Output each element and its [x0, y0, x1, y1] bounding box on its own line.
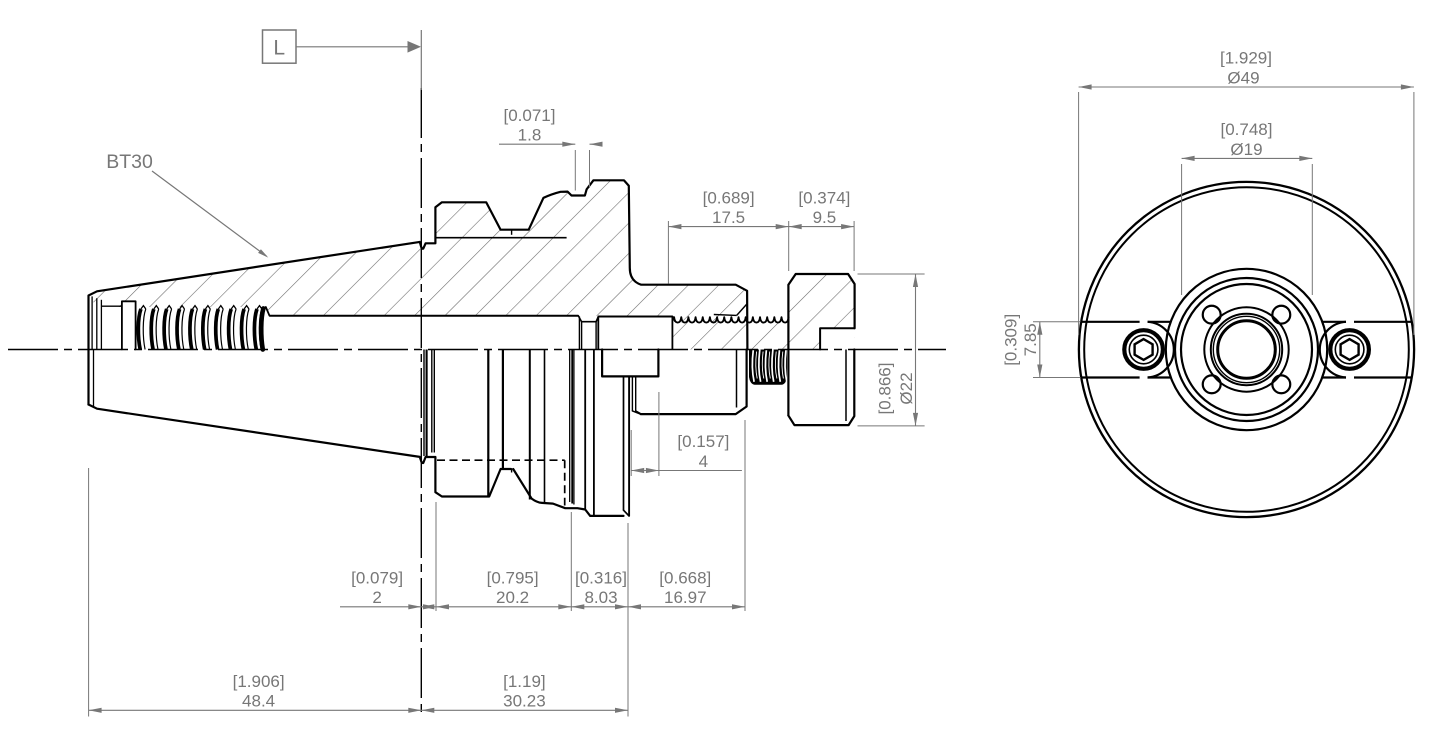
svg-text:[0.668]: [0.668]	[659, 569, 711, 588]
svg-text:Ø22: Ø22	[897, 372, 916, 404]
svg-text:L: L	[273, 37, 285, 60]
svg-text:[0.157]: [0.157]	[677, 432, 729, 451]
svg-text:[0.748]: [0.748]	[1221, 120, 1273, 139]
svg-text:[0.866]: [0.866]	[875, 363, 894, 415]
svg-text:Ø49: Ø49	[1227, 69, 1259, 88]
svg-text:[0.316]: [0.316]	[575, 569, 627, 588]
svg-text:4: 4	[699, 452, 708, 471]
svg-text:[0.795]: [0.795]	[487, 569, 539, 588]
svg-text:[1.19]: [1.19]	[503, 672, 546, 691]
svg-text:2: 2	[372, 588, 381, 607]
svg-text:[0.309]: [0.309]	[1002, 314, 1021, 366]
svg-text:48.4: 48.4	[242, 692, 275, 711]
svg-text:[0.071]: [0.071]	[504, 106, 556, 125]
svg-text:30.23: 30.23	[503, 692, 546, 711]
svg-text:20.2: 20.2	[496, 588, 529, 607]
svg-text:[0.374]: [0.374]	[798, 188, 850, 207]
svg-text:1.8: 1.8	[518, 126, 542, 145]
svg-text:[0.079]: [0.079]	[351, 569, 403, 588]
svg-text:[0.689]: [0.689]	[703, 188, 755, 207]
svg-text:[1.929]: [1.929]	[1220, 49, 1272, 68]
svg-text:[1.906]: [1.906]	[233, 672, 285, 691]
svg-text:8.03: 8.03	[584, 588, 617, 607]
svg-text:BT30: BT30	[106, 151, 153, 173]
svg-text:Ø19: Ø19	[1230, 140, 1262, 159]
svg-text:7.85: 7.85	[1021, 323, 1040, 356]
svg-text:16.97: 16.97	[664, 588, 707, 607]
svg-text:9.5: 9.5	[813, 208, 837, 227]
svg-text:17.5: 17.5	[712, 208, 745, 227]
